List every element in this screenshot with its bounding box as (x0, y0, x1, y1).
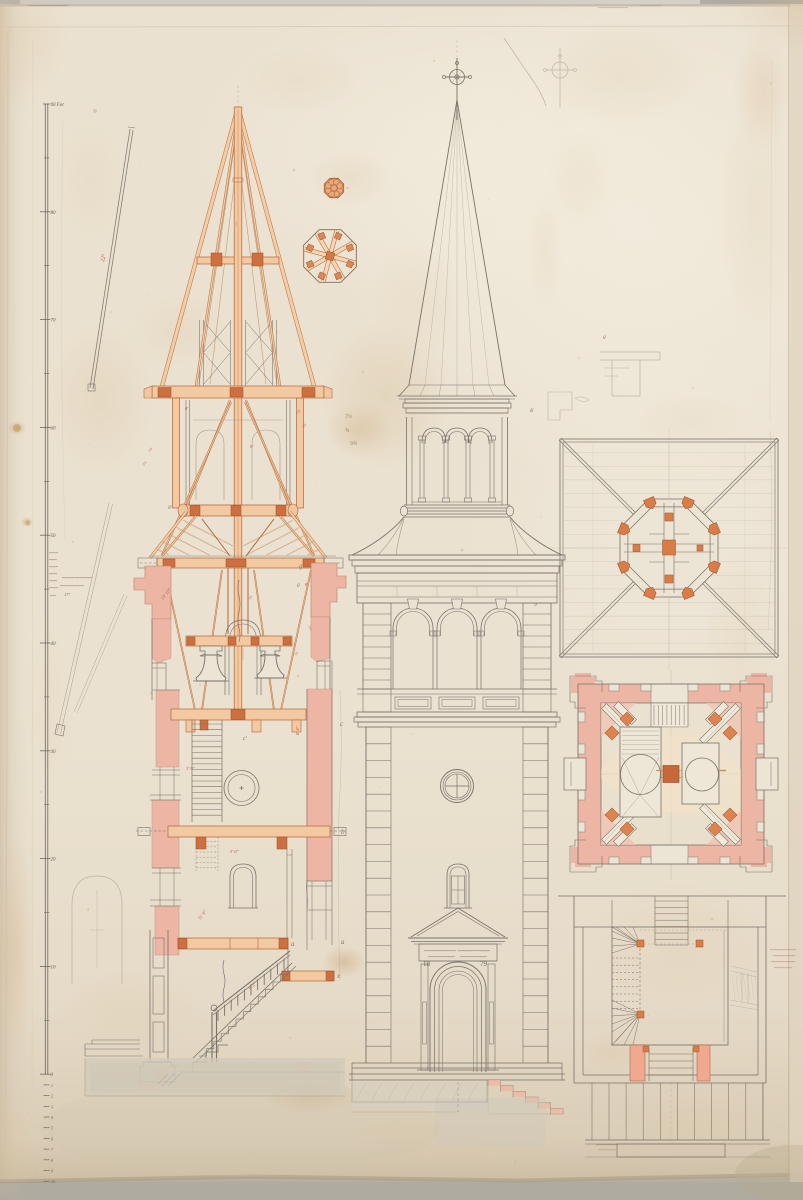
svg-text:10: 10 (51, 965, 57, 970)
svg-text:30: 30 (51, 750, 57, 755)
svg-text:b: b (341, 828, 345, 836)
svg-text:10: 10 (51, 1180, 55, 1184)
svg-text:20: 20 (51, 858, 57, 863)
svg-text:3' 9": 3' 9" (186, 766, 195, 771)
svg-text:50: 50 (51, 534, 57, 539)
svg-text:5: 5 (51, 1127, 53, 1131)
svg-text:40: 40 (51, 642, 57, 647)
svg-text:c′: c′ (243, 736, 248, 742)
svg-text:80: 80 (51, 211, 57, 216)
svg-text:a: a (291, 940, 295, 948)
svg-text:g: g (603, 334, 606, 340)
svg-text:7½: 7½ (345, 413, 352, 420)
svg-text:6: 6 (51, 1137, 53, 1141)
svg-text:|: | (236, 222, 237, 227)
svg-text:+: + (86, 908, 90, 914)
svg-text:8: 8 (51, 1159, 53, 1163)
svg-text:4: 4 (51, 1116, 53, 1120)
svg-text:¾: ¾ (345, 428, 349, 434)
svg-text:g: g (297, 582, 300, 588)
svg-text:8' 4": 8' 4" (295, 726, 300, 735)
svg-text:9: 9 (51, 1170, 53, 1174)
svg-text:9: 9 (534, 602, 537, 608)
svg-text:2: 2 (51, 1095, 53, 1099)
svg-text:17°: 17° (64, 592, 71, 597)
svg-text:9¾: 9¾ (350, 441, 357, 447)
svg-text:g: g (299, 562, 303, 570)
svg-text:K: K (529, 408, 534, 414)
svg-text:3' 6": 3' 6" (230, 849, 239, 854)
svg-text:70: 70 (51, 319, 57, 324)
svg-text:3: 3 (51, 1105, 53, 1109)
svg-text:90 Fot: 90 Fot (51, 103, 65, 108)
svg-text:a: a (341, 938, 345, 946)
svg-text:60: 60 (51, 426, 57, 431)
svg-text:1: 1 (51, 1084, 53, 1088)
